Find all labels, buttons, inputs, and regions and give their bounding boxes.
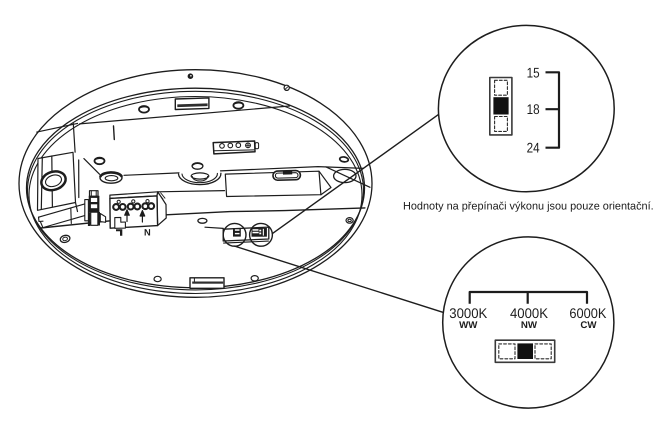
svg-text:N: N — [144, 227, 151, 237]
svg-text:NW: NW — [521, 320, 538, 331]
svg-text:18: 18 — [527, 101, 540, 117]
svg-text:CW: CW — [580, 320, 597, 331]
svg-text:4000K: 4000K — [510, 305, 549, 321]
svg-text:15: 15 — [527, 64, 540, 80]
svg-text:WW: WW — [459, 320, 478, 331]
svg-text:3000K: 3000K — [449, 305, 488, 321]
svg-text:24: 24 — [527, 140, 540, 156]
svg-text:6000K: 6000K — [569, 305, 607, 321]
svg-text:Hodnoty na přepínači výkonu js: Hodnoty na přepínači výkonu jsou pouze o… — [403, 201, 654, 213]
